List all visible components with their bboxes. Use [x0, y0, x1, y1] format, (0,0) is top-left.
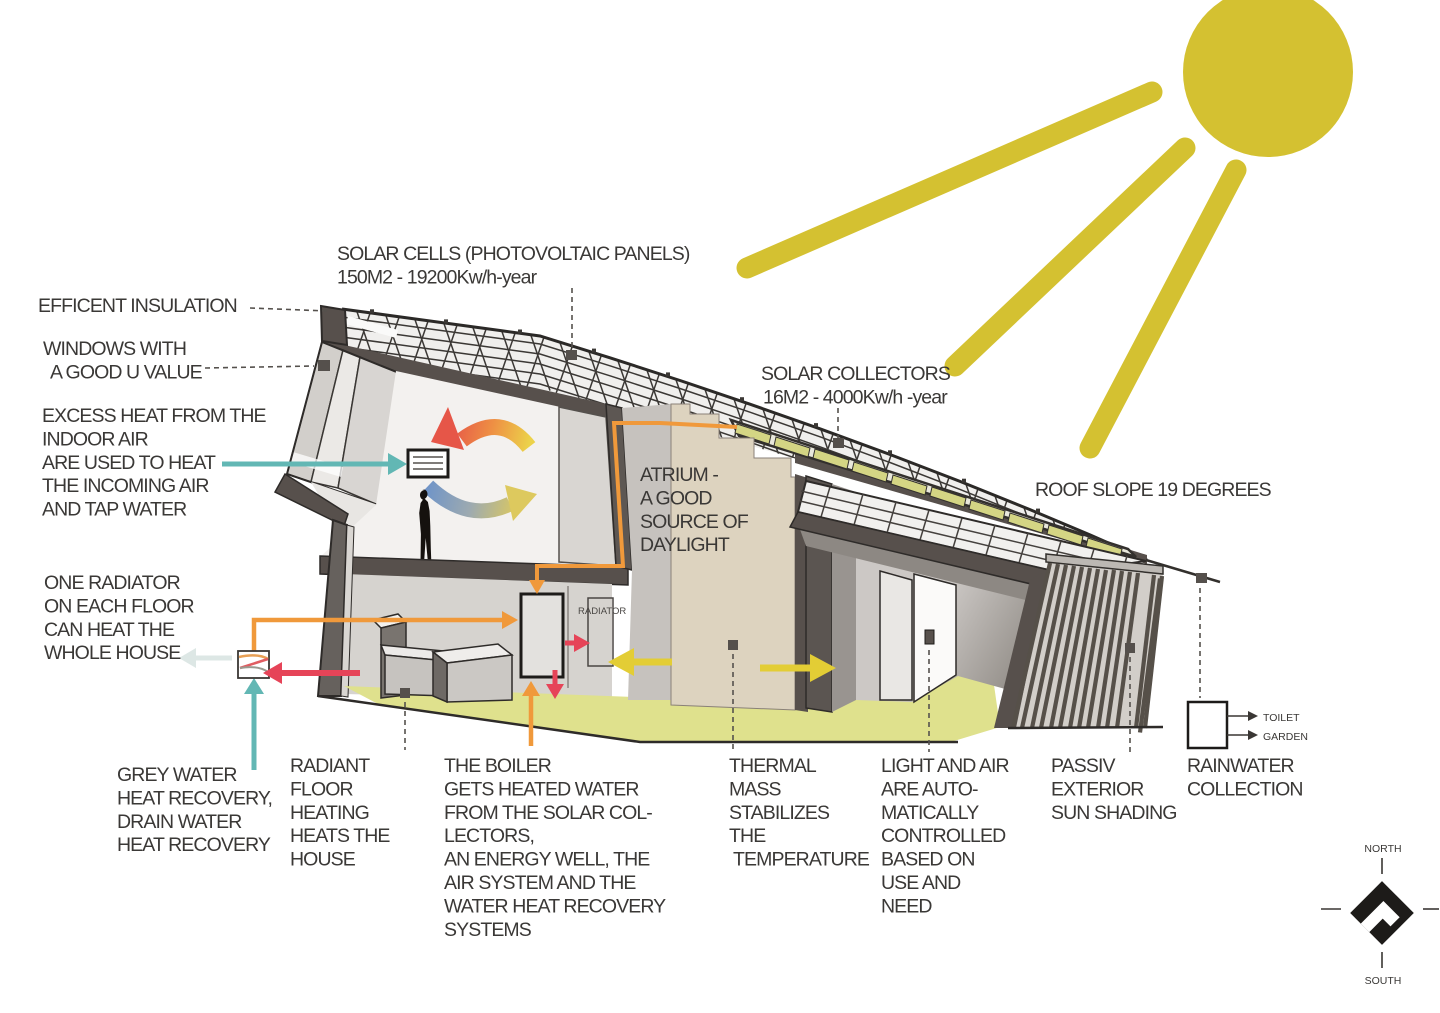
svg-text:WINDOWS WITHA GOOD U VALUE: WINDOWS WITHA GOOD U VALUE — [43, 338, 203, 383]
svg-text:EFFICENT INSULATION: EFFICENT INSULATION — [38, 295, 237, 317]
svg-text:ONE RADIATORON EACH FLOORCAN H: ONE RADIATORON EACH FLOORCAN HEAT THEWHO… — [44, 572, 195, 664]
svg-text:NORTH: NORTH — [1364, 843, 1401, 855]
svg-text:RADIATOR: RADIATOR — [578, 606, 626, 617]
svg-text:THE BOILERGETS HEATED WATERFRO: THE BOILERGETS HEATED WATERFROM THE SOLA… — [444, 755, 666, 941]
svg-text:TOILET: TOILET — [1263, 712, 1300, 724]
svg-text:RAINWATERCOLLECTION: RAINWATERCOLLECTION — [1187, 755, 1303, 800]
svg-text:ROOF SLOPE 19 DEGREES: ROOF SLOPE 19 DEGREES — [1035, 479, 1272, 501]
svg-text:GARDEN: GARDEN — [1263, 731, 1308, 743]
svg-text:SOUTH: SOUTH — [1365, 975, 1402, 987]
svg-text:SOLAR COLLECTORS16M2 - 4000Kw/: SOLAR COLLECTORS16M2 - 4000Kw/h -year — [761, 363, 951, 408]
